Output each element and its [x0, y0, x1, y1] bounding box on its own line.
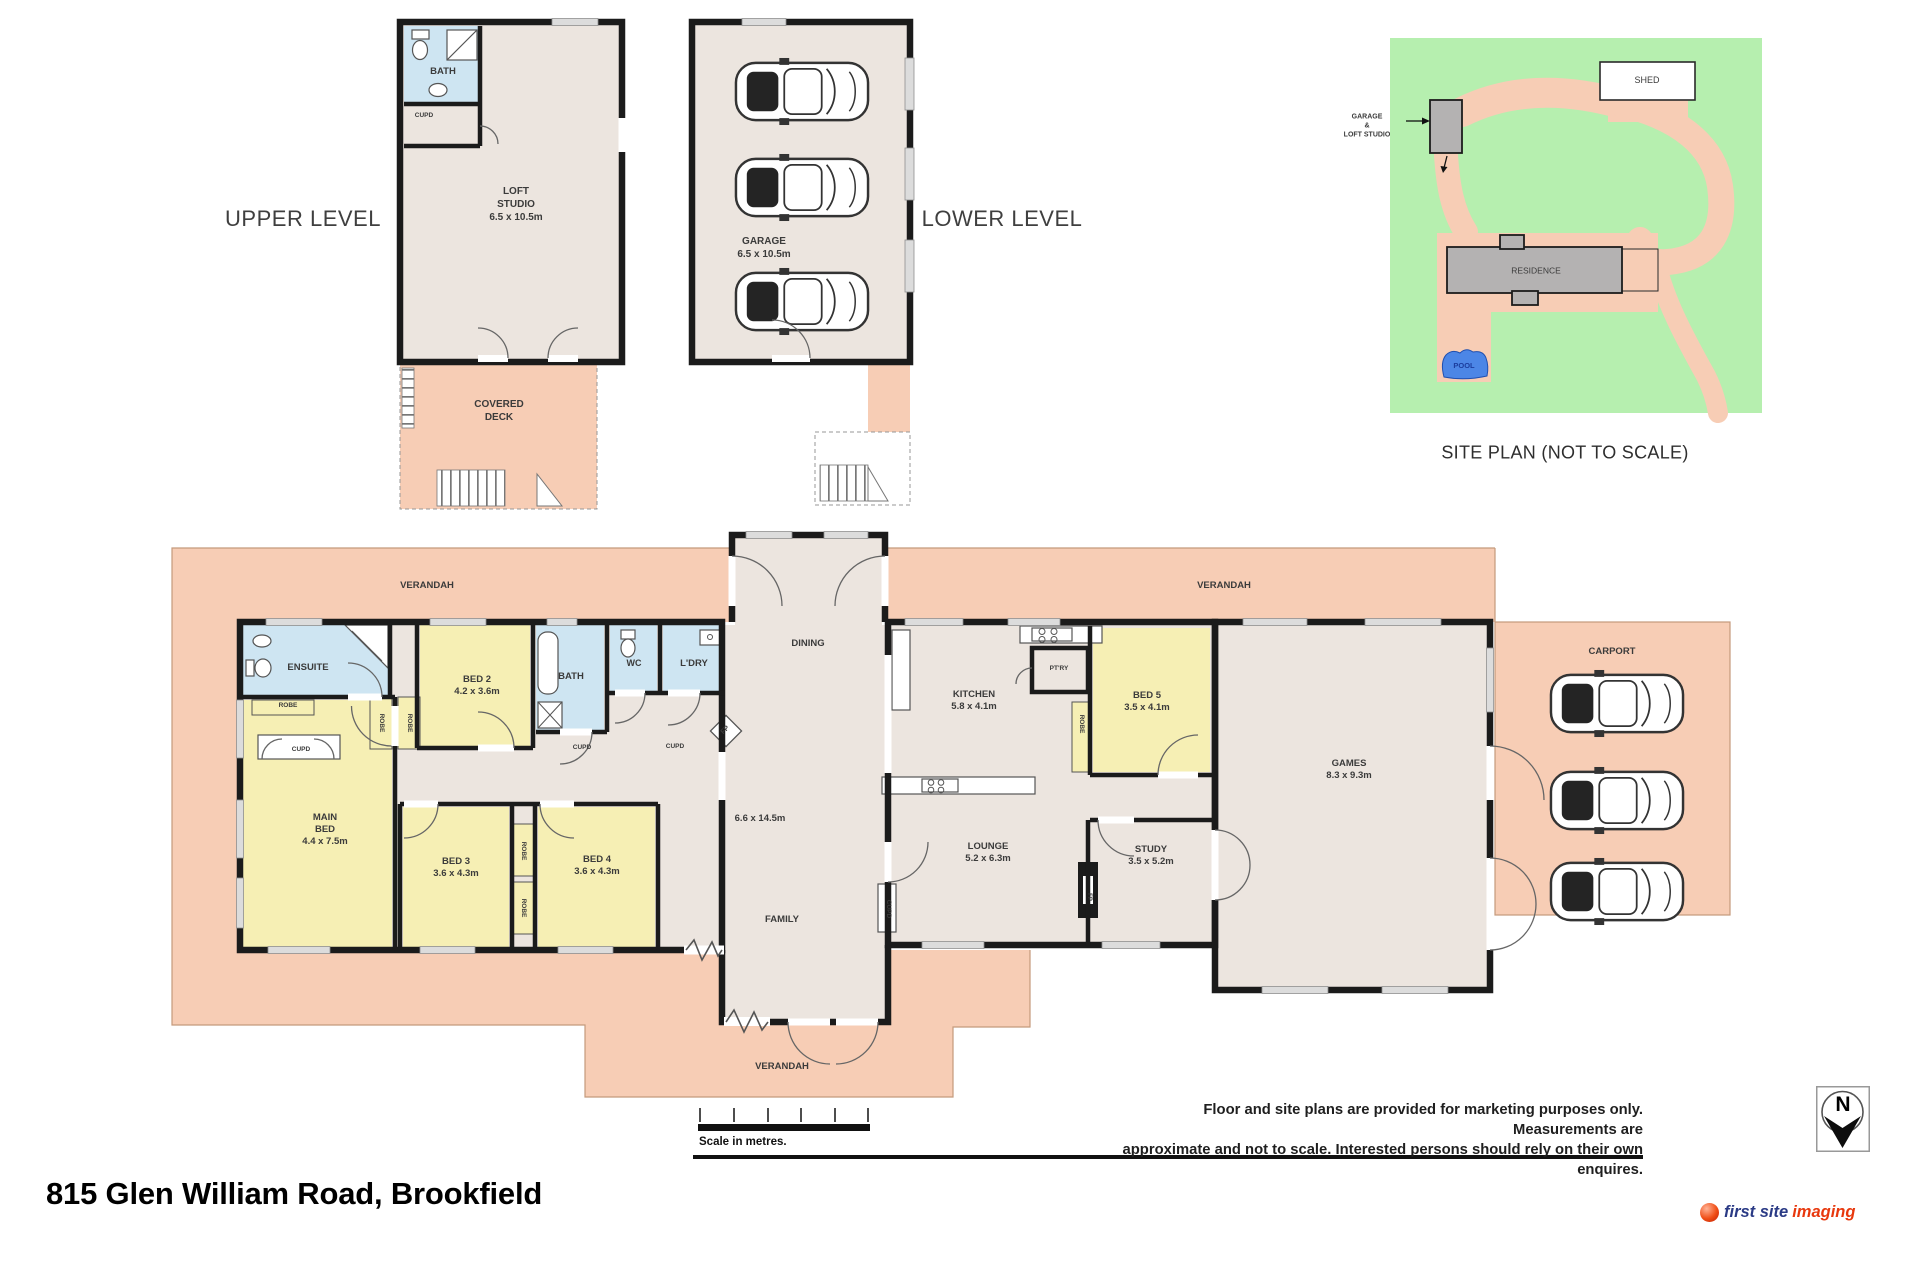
property-address: 815 Glen William Road, Brookfield: [46, 1176, 542, 1212]
ldry-label: L'DRY: [680, 658, 708, 670]
covered-deck-label: COVEREDDECK: [474, 399, 523, 425]
robe-a-label: ROBE: [377, 714, 385, 733]
robe-c-label: ROBE: [519, 842, 527, 861]
games-label: GAMES8.3 x 9.3m: [1326, 758, 1371, 782]
ldry-cupd-label: CUPD: [666, 743, 684, 751]
car-icon: [736, 268, 868, 335]
car-icon: [1551, 858, 1683, 925]
family-cupd-label: CUPD: [884, 900, 892, 918]
scale-bar-label: Scale in metres.: [699, 1136, 787, 1148]
pool-label: POOL: [1453, 361, 1474, 371]
kitchen-label: KITCHEN5.8 x 4.1m: [951, 689, 996, 713]
lower-level-plan: [692, 19, 914, 506]
logo-word-imaging: imaging: [1792, 1203, 1855, 1222]
dining-label: DINING: [791, 638, 824, 650]
bath-label: BATH: [558, 671, 584, 683]
bed2-label: BED 24.2 x 3.6m: [454, 674, 499, 698]
bath-cupd-label: CUPD: [573, 744, 591, 752]
robe-d-label: ROBE: [519, 899, 527, 918]
upper-level-plan: [400, 19, 626, 510]
bed4-label: BED 43.6 x 4.3m: [574, 854, 619, 878]
first-site-imaging-logo: first site imaging: [1700, 1203, 1855, 1222]
site-plan: [1390, 38, 1762, 413]
main-floor-plan: [172, 532, 1730, 1098]
north-label: N: [1835, 1093, 1850, 1117]
family-label: FAMILY: [765, 914, 799, 926]
garage-label: GARAGE6.5 x 10.5m: [737, 236, 790, 262]
bed5-robe-label: ROBE: [1077, 715, 1085, 734]
loft-bath-label: BATH: [430, 66, 456, 78]
wc-label: WC: [627, 658, 642, 670]
bed3-label: BED 33.6 x 4.3m: [433, 856, 478, 880]
disclaimer: Floor and site plans are provided for ma…: [1100, 1100, 1643, 1180]
loft-studio-label: LOFTSTUDIO6.5 x 10.5m: [489, 186, 542, 224]
car-icon: [736, 58, 868, 125]
shed-label: SHED: [1634, 75, 1659, 87]
lower-level-label: LOWER LEVEL: [922, 205, 1083, 233]
verandah-top-right-label: VERANDAH: [1197, 580, 1251, 592]
loft-cupd-label: CUPD: [415, 112, 433, 120]
carport-label: CARPORT: [1589, 646, 1636, 658]
hall-cupd-label: CUPD: [292, 746, 310, 754]
logo-sphere-icon: [1700, 1203, 1719, 1222]
ptry-label: PT'RY: [1050, 665, 1069, 673]
upper-level-label: UPPER LEVEL: [225, 205, 381, 233]
siteplan-title: SITE PLAN (NOT TO SCALE): [1441, 441, 1688, 464]
lounge-fp-label: FP: [1084, 893, 1092, 901]
family-dims-label: 6.6 x 14.5m: [735, 813, 786, 825]
robe-b-label: ROBE: [405, 714, 413, 733]
floorplan-page: UPPER LEVELLOWER LEVELBATHCUPDLOFTSTUDIO…: [0, 0, 1920, 1279]
disclaimer-line1: Floor and site plans are provided for ma…: [1100, 1100, 1643, 1140]
disclaimer-line2: approximate and not to scale. Interested…: [1100, 1140, 1643, 1180]
ensuite-label: ENSUITE: [287, 662, 328, 674]
floorplan-graphics: [0, 0, 1920, 1279]
car-icon: [736, 154, 868, 221]
residence-label: RESIDENCE: [1511, 266, 1561, 277]
study-label: STUDY3.5 x 5.2m: [1128, 844, 1173, 868]
main-bed-label: MAINBED4.4 x 7.5m: [302, 812, 347, 848]
mainbed-robe-label: ROBE: [279, 702, 298, 710]
siteplan-garage-pointer: GARAGE&LOFT STUDIO: [1344, 114, 1391, 141]
verandah-bottom-label: VERANDAH: [755, 1061, 809, 1073]
verandah-top-left-label: VERANDAH: [400, 580, 454, 592]
lounge-label: LOUNGE5.2 x 6.3m: [965, 841, 1010, 865]
car-icon: [1551, 767, 1683, 834]
bed5-label: BED 53.5 x 4.1m: [1124, 690, 1169, 714]
car-icon: [1551, 670, 1683, 737]
logo-word-first-site: first site: [1724, 1203, 1788, 1222]
covered-deck: [400, 362, 597, 509]
